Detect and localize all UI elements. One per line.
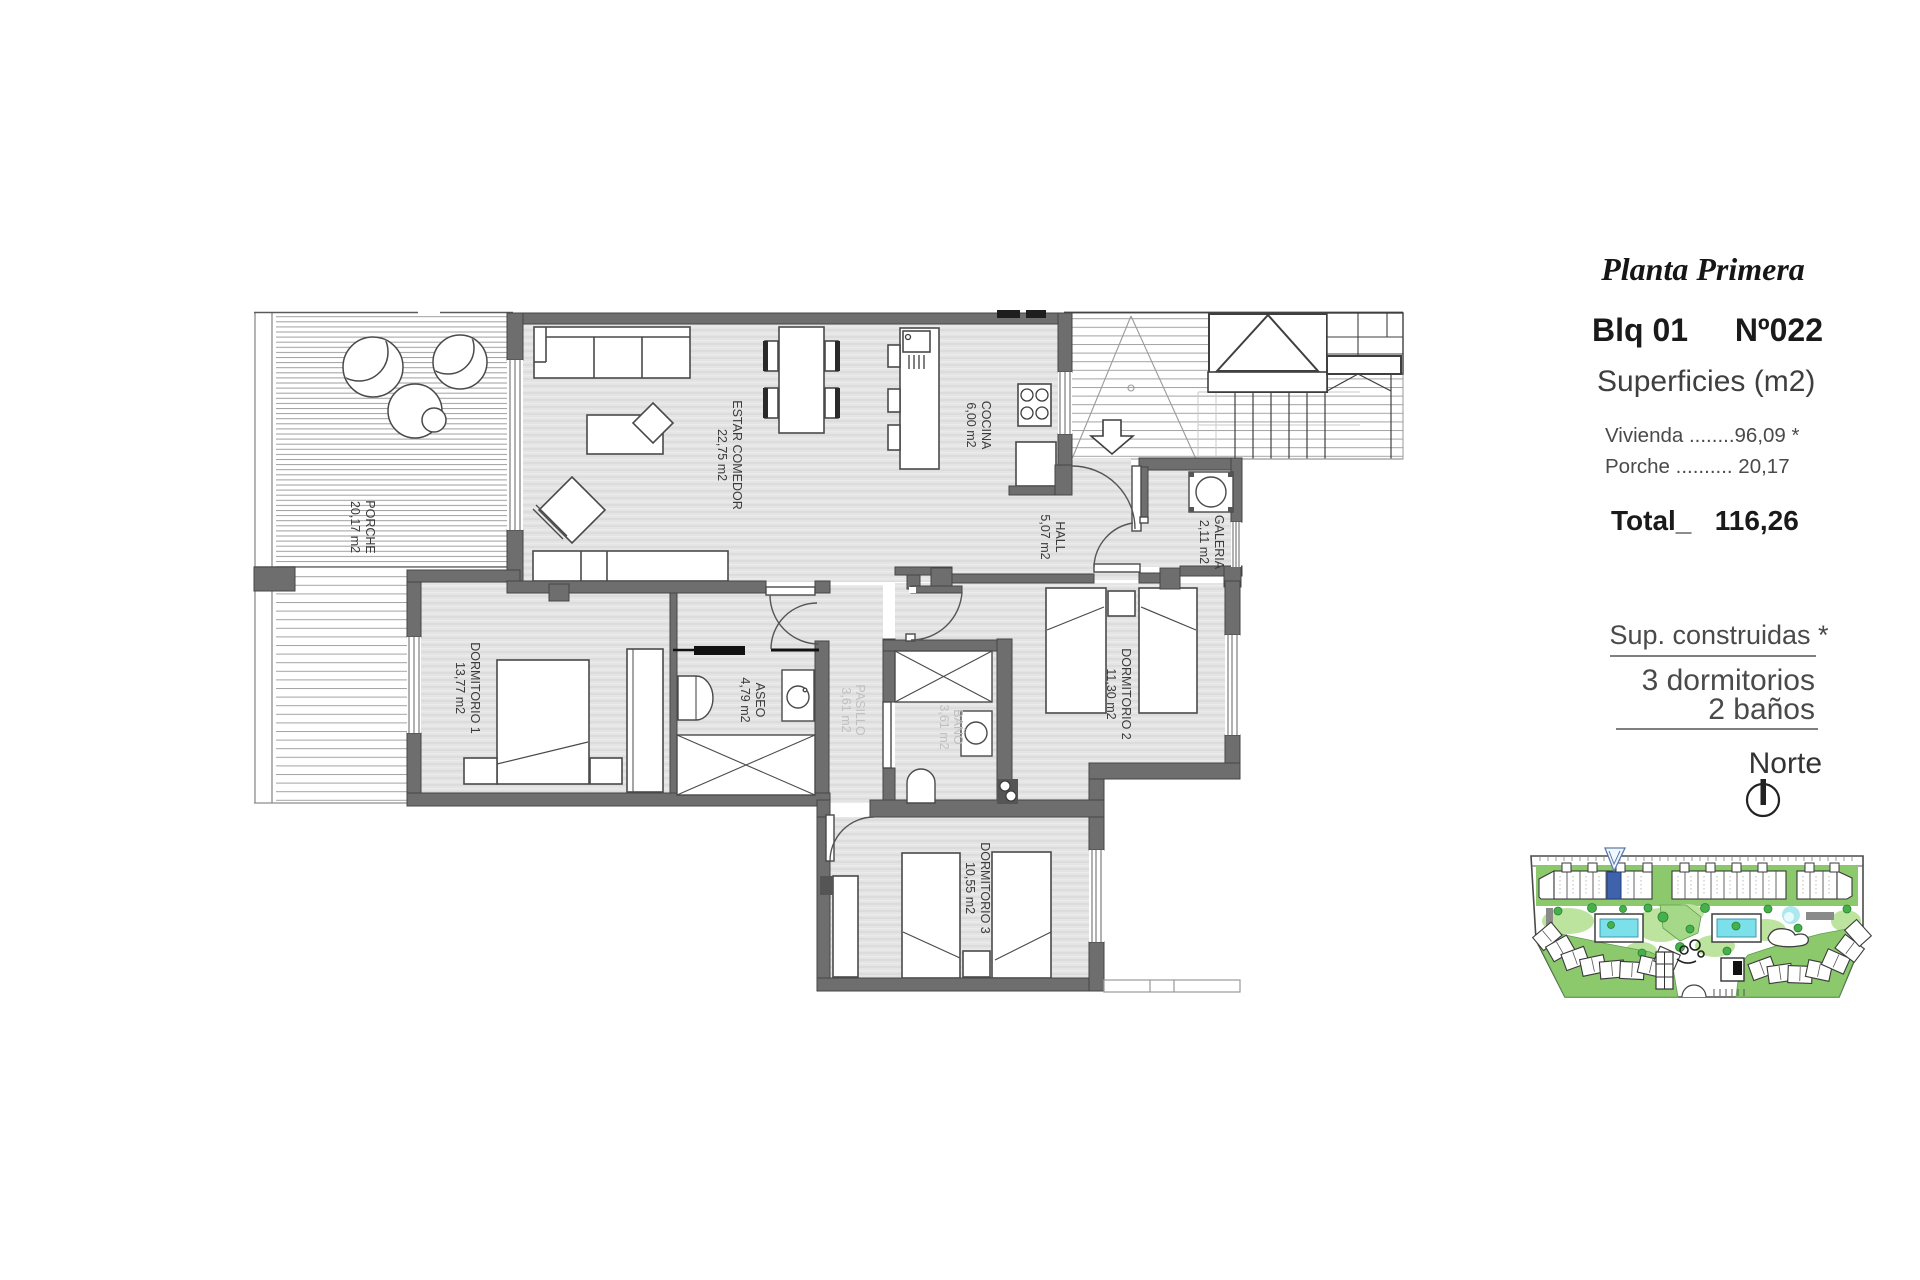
svg-text:11,30 m2: 11,30 m2	[1104, 668, 1118, 719]
svg-text:COCINA: COCINA	[979, 401, 993, 450]
svg-text:Porche .......... 20,17: Porche .......... 20,17	[1605, 455, 1790, 478]
svg-text:BAÑO: BAÑO	[951, 709, 965, 745]
svg-text:DORMITORIO 1: DORMITORIO 1	[468, 642, 482, 733]
svg-text:20,17 m2: 20,17 m2	[348, 501, 362, 553]
svg-text:ASEO: ASEO	[753, 683, 767, 718]
svg-text:DORMITORIO 3: DORMITORIO 3	[978, 842, 992, 933]
svg-text:Blq 01: Blq 01	[1592, 312, 1688, 348]
svg-text:5,07 m2: 5,07 m2	[1038, 514, 1052, 559]
svg-text:2 baños: 2 baños	[1708, 693, 1815, 726]
svg-text:PORCHE: PORCHE	[363, 500, 377, 553]
svg-text:3,61 m2: 3,61 m2	[937, 704, 951, 749]
svg-text:6,00 m2: 6,00 m2	[964, 402, 978, 447]
svg-text:22,75 m2: 22,75 m2	[715, 429, 729, 481]
svg-text:2,11 m2: 2,11 m2	[1197, 520, 1211, 564]
svg-text:Sup. construidas *: Sup. construidas *	[1609, 620, 1829, 650]
svg-text:Norte: Norte	[1749, 747, 1822, 780]
svg-text:Planta Primera: Planta Primera	[1600, 251, 1805, 287]
svg-text:ESTAR COMEDOR: ESTAR COMEDOR	[730, 400, 744, 510]
svg-text:Total_ 116,26: Total_ 116,26	[1611, 505, 1799, 536]
svg-text:PASILLO: PASILLO	[853, 684, 867, 735]
svg-text:GALERIA: GALERIA	[1212, 515, 1226, 570]
svg-text:3,61 m2: 3,61 m2	[839, 687, 853, 732]
svg-text:4,79 m2: 4,79 m2	[738, 677, 752, 722]
svg-text:10,55 m2: 10,55 m2	[963, 862, 977, 914]
svg-text:Nº022: Nº022	[1735, 312, 1823, 348]
svg-text:HALL: HALL	[1053, 521, 1067, 552]
svg-text:13,77 m2: 13,77 m2	[453, 662, 467, 714]
svg-text:Vivienda ........96,09 *: Vivienda ........96,09 *	[1605, 424, 1800, 447]
svg-text:Superficies (m2): Superficies (m2)	[1597, 365, 1815, 398]
svg-text:DORMITORIO 2: DORMITORIO 2	[1119, 648, 1133, 739]
